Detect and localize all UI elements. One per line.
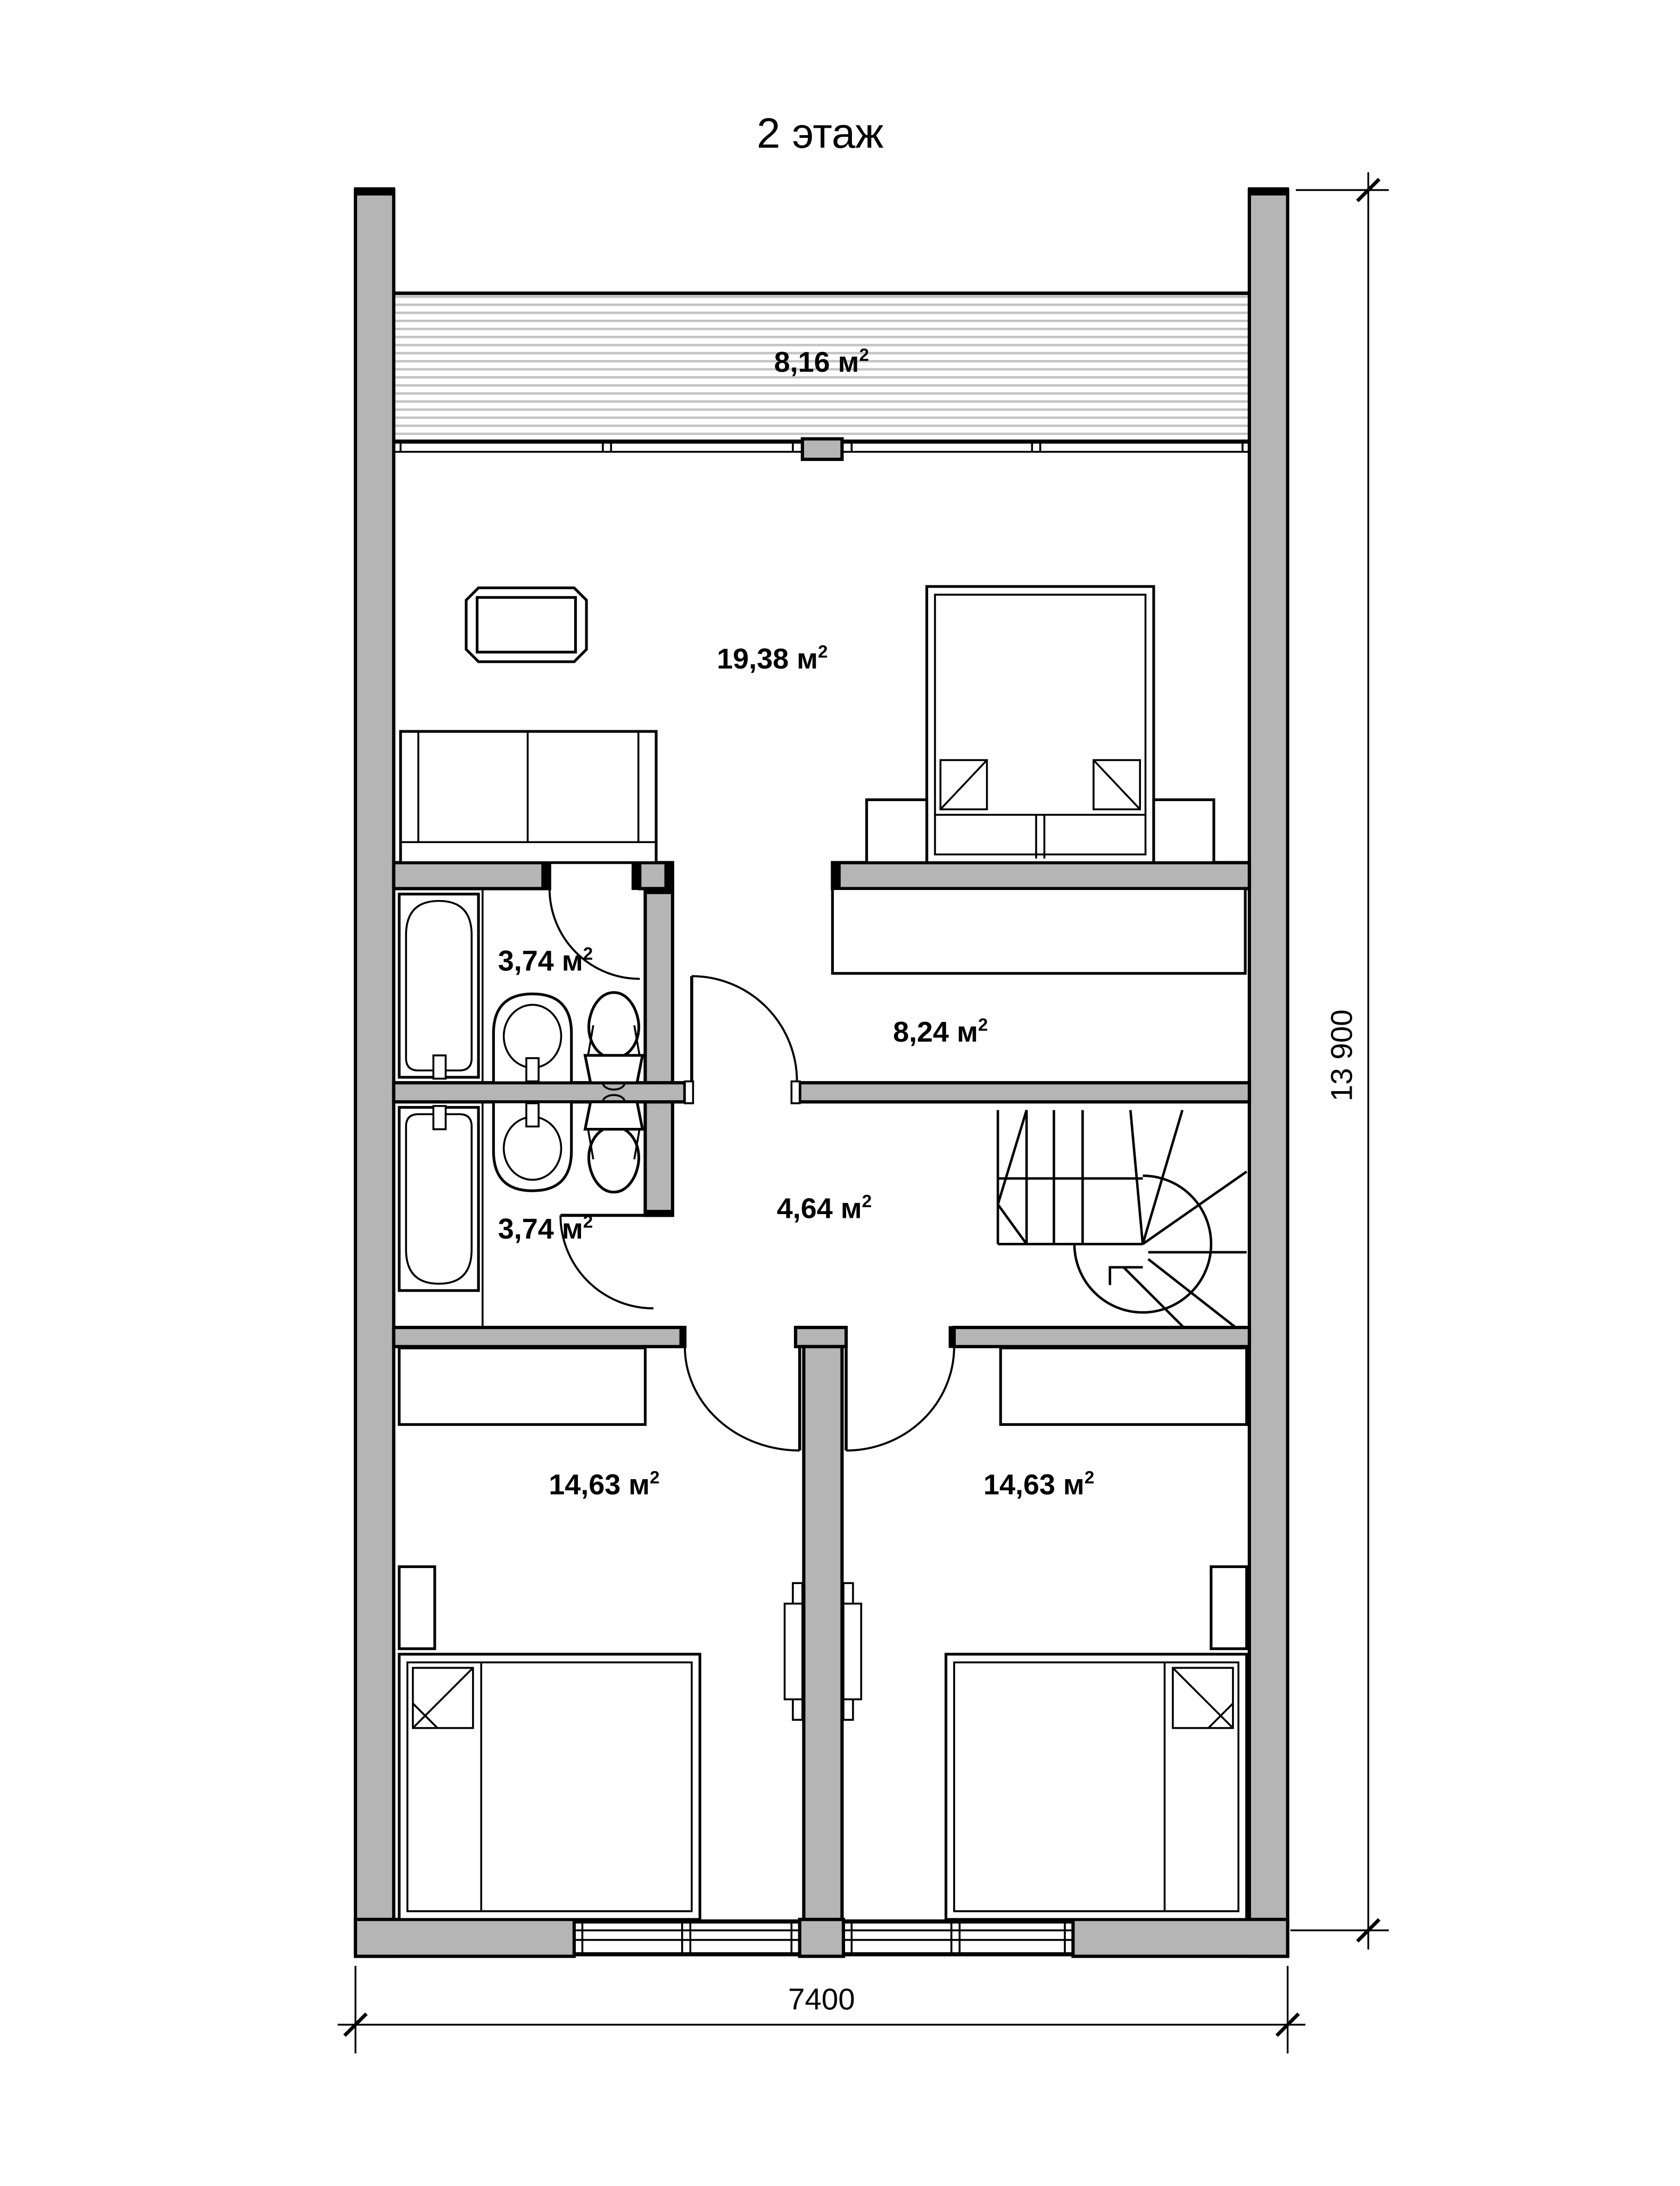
nightstand [1211, 1566, 1247, 1648]
window-pier [802, 439, 842, 459]
room-label-corridor: 4,64 м2 [777, 1192, 872, 1225]
room-label-bedroom-left: 14,63 м2 [549, 1468, 659, 1501]
floor-plan-drawing: 2 этаж [0, 0, 1680, 2186]
bathroom-top [399, 889, 642, 1090]
room-label-living-room: 19,38 м2 [717, 642, 827, 675]
room-label-terrace: 8,16 м2 [774, 345, 869, 378]
toilet [585, 993, 642, 1090]
bed [399, 1654, 700, 1919]
sink [493, 1102, 571, 1191]
wardrobe [399, 1348, 645, 1425]
toilet [585, 1095, 642, 1192]
nightstand [867, 800, 927, 863]
dimension-width-label: 7400 [788, 1983, 855, 2016]
bed [946, 1654, 1247, 1919]
bedroom-left-door [685, 1347, 800, 1450]
hall-door [692, 976, 797, 1082]
bathtub [399, 894, 478, 1079]
wardrobe [1000, 1348, 1246, 1425]
room-label-bedroom-right: 14,63 м2 [983, 1468, 1094, 1501]
bedroom-right-door [846, 1347, 954, 1450]
terrace-window [394, 439, 1249, 459]
sofa [401, 731, 656, 863]
living-room-furniture [401, 587, 1214, 863]
tv-table [466, 588, 586, 662]
floor-plan-page: 2 этаж [0, 0, 1680, 2186]
staircase [998, 1110, 1246, 1327]
nightstand [399, 1566, 435, 1648]
dimension-height: 13 900 [1290, 172, 1389, 1950]
sink [493, 994, 571, 1083]
double-bed [927, 587, 1154, 863]
hall-wardrobe [832, 889, 1245, 974]
room-label-hall: 8,24 м2 [893, 1016, 988, 1049]
dimension-width: 7400 [338, 1966, 1305, 2053]
bedroom-left-furniture [399, 1348, 700, 1920]
dimension-height-label: 13 900 [1325, 1009, 1358, 1101]
room-label-bathroom-top: 3,74 м2 [498, 944, 593, 977]
bathtub [399, 1106, 478, 1291]
page-title: 2 этаж [757, 109, 883, 156]
bathroom-bottom [399, 1095, 653, 1327]
room-label-bathroom-bottom: 3,74 м2 [498, 1212, 593, 1245]
bedroom-right-furniture [946, 1348, 1247, 1920]
nightstand [1154, 800, 1214, 863]
